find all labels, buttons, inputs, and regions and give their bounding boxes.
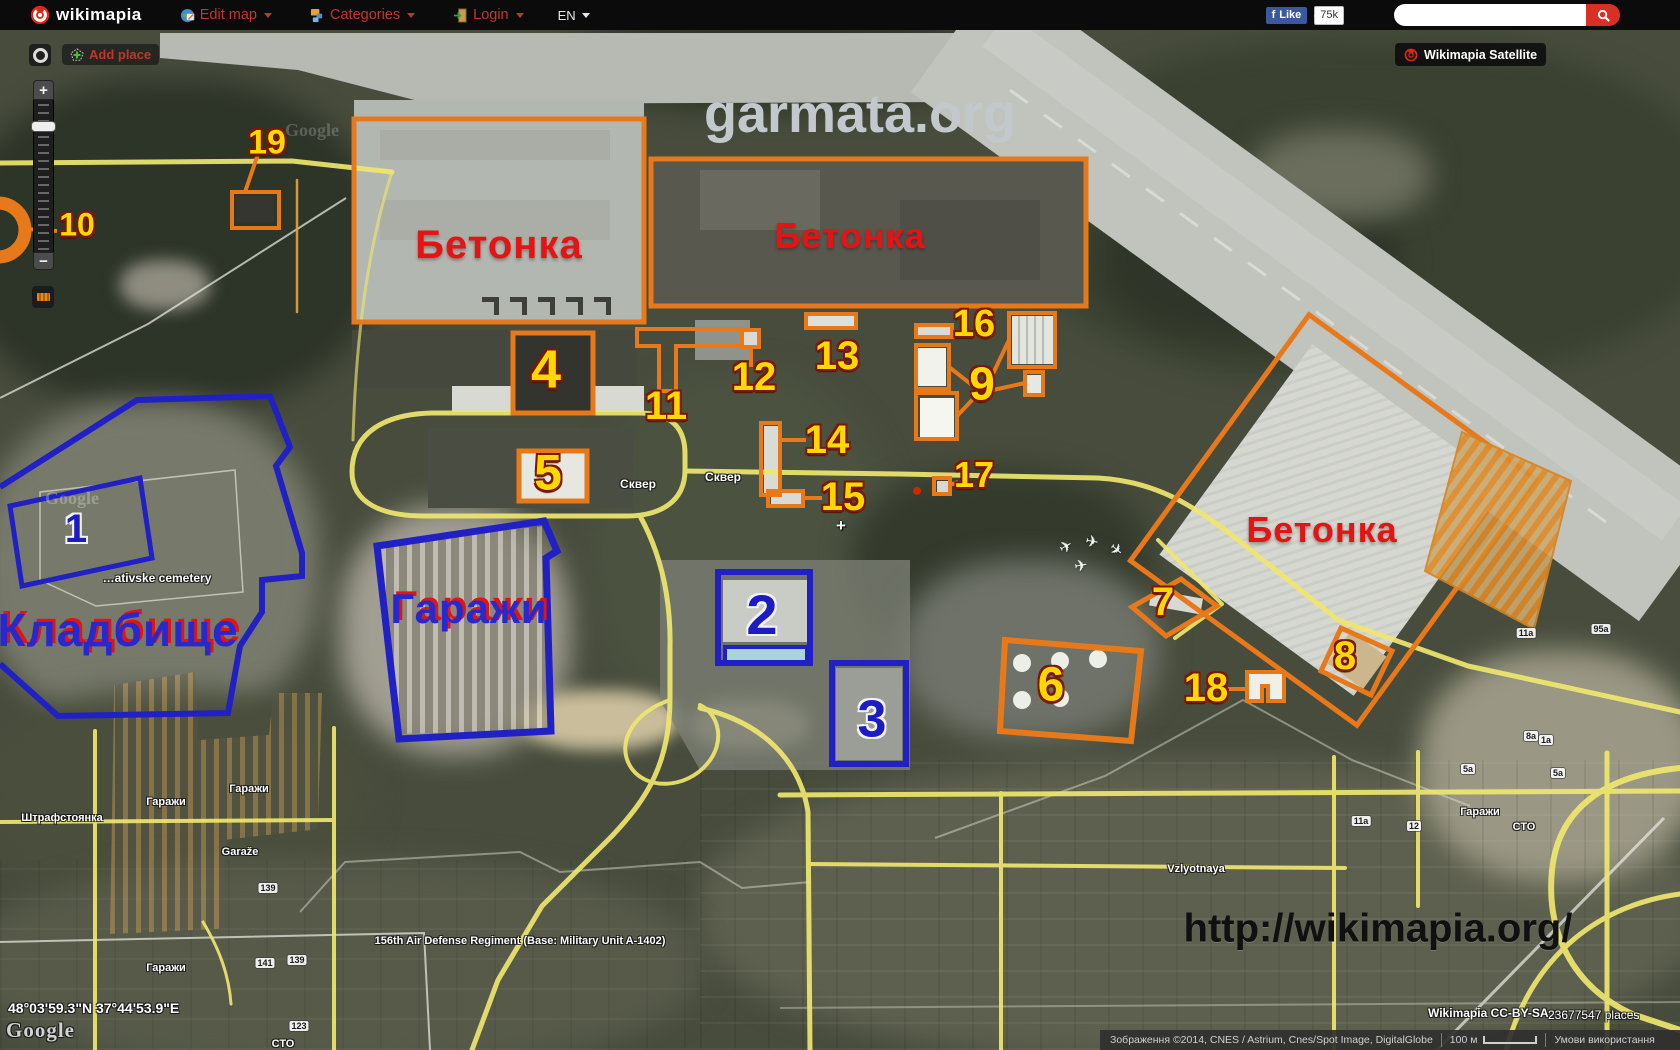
map-number-2[interactable]: 2 xyxy=(746,587,777,643)
place-label[interactable]: Бетонка xyxy=(415,225,582,265)
address-chip: 139 xyxy=(258,883,277,893)
dot-circle-icon xyxy=(33,48,48,63)
search-bar xyxy=(1394,4,1620,26)
scale-bar xyxy=(1483,1036,1537,1044)
menu-label: Login xyxy=(473,7,508,23)
map-type-label: Wikimapia Satellite xyxy=(1424,48,1537,62)
wikimapia-logo[interactable]: wikimapia xyxy=(30,5,142,25)
map-number-1[interactable]: 1 xyxy=(65,509,87,549)
wikimapia-logo-icon xyxy=(30,5,50,25)
place-label[interactable]: Гаражи xyxy=(229,783,269,795)
map-center-crosshair: + xyxy=(836,516,846,536)
edit-map-icon xyxy=(180,8,195,23)
google-logo: Google xyxy=(6,1018,75,1043)
address-chip: 8a xyxy=(1524,731,1538,741)
divider xyxy=(1545,1033,1546,1047)
address-chip: 139 xyxy=(287,955,306,965)
wikimapia-app: garmata.org http://wikimapia.org/ Google… xyxy=(0,0,1680,1050)
like-label: Like xyxy=(1279,9,1301,21)
map-number-18[interactable]: 18 xyxy=(1184,668,1229,708)
attribution-bar: Зображення ©2014, CNES / Astrium, Cnes/S… xyxy=(1100,1030,1680,1050)
map-number-3[interactable]: 3 xyxy=(858,693,887,745)
facebook-icon: f xyxy=(1272,9,1276,21)
place-label[interactable]: 156th Air Defense Regiment (Base: Milita… xyxy=(375,935,666,947)
address-chip: 11a xyxy=(1517,628,1536,638)
place-label[interactable]: Кладбище xyxy=(0,607,239,653)
map-number-13[interactable]: 13 xyxy=(815,336,860,376)
map-number-19[interactable]: 19 xyxy=(248,125,286,159)
address-chip: 123 xyxy=(289,1021,308,1031)
categories-icon xyxy=(310,8,325,23)
menu-categories[interactable]: Categories xyxy=(310,7,415,23)
chevron-down-icon xyxy=(407,13,415,18)
chevron-down-icon xyxy=(582,13,590,18)
license-label[interactable]: Wikimapia CC-BY-SA xyxy=(1428,1006,1549,1020)
place-label[interactable]: Vzlyotnaya xyxy=(1167,863,1224,875)
airplane-icon: ✈ xyxy=(1073,555,1090,577)
google-watermark: Google xyxy=(45,488,99,509)
language-selector[interactable]: EN xyxy=(558,8,590,23)
map-number-11[interactable]: 11 xyxy=(645,386,687,426)
address-chip: 141 xyxy=(255,958,274,968)
measure-distance-button[interactable] xyxy=(32,286,54,308)
place-label[interactable]: СТО xyxy=(272,1038,295,1050)
map-number-6[interactable]: 6 xyxy=(1038,662,1065,710)
map-number-14[interactable]: 14 xyxy=(805,420,850,460)
map-type-button[interactable]: Wikimapia Satellite xyxy=(1395,43,1546,66)
like-count-badge: 75k xyxy=(1314,6,1344,25)
scale-label: 100 м xyxy=(1450,1034,1478,1046)
places-count: 23677547 places xyxy=(1548,1008,1639,1022)
map-marker-toggle-button[interactable] xyxy=(29,44,51,66)
top-navbar: wikimapia Edit map Categories xyxy=(0,0,1680,30)
place-label[interactable]: Бетонка xyxy=(1246,512,1397,548)
wikimapia-logo-icon xyxy=(1404,48,1418,62)
place-label[interactable]: Сквер xyxy=(705,470,741,484)
chevron-down-icon xyxy=(264,13,272,18)
garmata-watermark: garmata.org xyxy=(704,83,1016,145)
add-place-icon xyxy=(70,48,84,62)
airplane-icon: ✈ xyxy=(1055,535,1077,559)
divider xyxy=(1441,1033,1442,1047)
map-number-10[interactable]: 10 xyxy=(59,208,95,240)
place-label[interactable]: Гаражи xyxy=(146,962,186,974)
search-button[interactable] xyxy=(1586,4,1620,26)
airplane-icon: ✈ xyxy=(1084,531,1101,553)
map-number-4[interactable]: 4 xyxy=(531,342,561,396)
login-door-icon xyxy=(453,8,468,23)
brand-name: wikimapia xyxy=(56,5,142,25)
map-number-16[interactable]: 16 xyxy=(953,305,995,343)
menu-edit-map[interactable]: Edit map xyxy=(180,7,272,23)
wikimapia-url-watermark: http://wikimapia.org/ xyxy=(1184,907,1573,952)
address-chip: 12 xyxy=(1407,821,1421,831)
map-number-15[interactable]: 15 xyxy=(821,477,866,517)
map-number-5[interactable]: 5 xyxy=(534,448,562,498)
zoom-in-button[interactable]: + xyxy=(33,80,54,100)
place-label[interactable]: Бетонка xyxy=(774,218,925,254)
map-number-12[interactable]: 12 xyxy=(732,357,777,397)
search-icon xyxy=(1597,9,1610,22)
add-place-label: Add place xyxy=(89,47,151,62)
map-number-8[interactable]: 8 xyxy=(1334,636,1356,676)
address-chip: 5a xyxy=(1461,764,1475,774)
address-chip: 95a xyxy=(1591,624,1610,634)
search-input[interactable] xyxy=(1394,4,1586,26)
map-number-17[interactable]: 17 xyxy=(954,457,994,493)
menu-login[interactable]: Login xyxy=(453,7,523,23)
place-label[interactable]: Гаражи xyxy=(146,796,186,808)
place-label[interactable]: Сквер xyxy=(620,477,656,491)
zoom-out-button[interactable]: − xyxy=(33,252,54,270)
chevron-down-icon xyxy=(516,13,524,18)
place-label[interactable]: СТО xyxy=(1513,821,1536,833)
language-label: EN xyxy=(558,8,576,23)
place-label[interactable]: Гаражи xyxy=(1460,806,1500,818)
map-number-9[interactable]: 9 xyxy=(969,361,995,407)
facebook-like-widget: f Like 75k xyxy=(1266,6,1344,25)
menu-label: Categories xyxy=(330,7,400,23)
place-label[interactable]: Штрафстоянка xyxy=(21,812,103,824)
place-label[interactable]: Гаражи xyxy=(390,588,547,630)
address-chip: 1a xyxy=(1539,735,1553,745)
map-labels-layer: garmata.org http://wikimapia.org/ Google… xyxy=(0,0,1680,1050)
terms-link[interactable]: Умови використання xyxy=(1554,1034,1654,1046)
add-place-button[interactable]: Add place xyxy=(62,44,159,65)
address-chip: 11a xyxy=(1352,816,1371,826)
facebook-like-button[interactable]: f Like xyxy=(1266,7,1308,24)
imagery-attribution: Зображення ©2014, CNES / Astrium, Cnes/S… xyxy=(1110,1034,1433,1046)
google-watermark: Google xyxy=(285,120,339,141)
map-number-7[interactable]: 7 xyxy=(1152,582,1174,622)
ruler-icon xyxy=(37,293,50,301)
menu-label: Edit map xyxy=(200,7,257,23)
cursor-coordinates: 48°03'59.3"N 37°44'53.9"E xyxy=(8,1000,179,1016)
zoom-slider-handle[interactable] xyxy=(31,121,56,132)
place-label[interactable]: Garaže xyxy=(222,846,259,858)
airplane-icon: ✈ xyxy=(1104,538,1127,562)
place-label[interactable]: …ativske cemetery xyxy=(103,571,212,585)
address-chip: 5a xyxy=(1551,768,1565,778)
